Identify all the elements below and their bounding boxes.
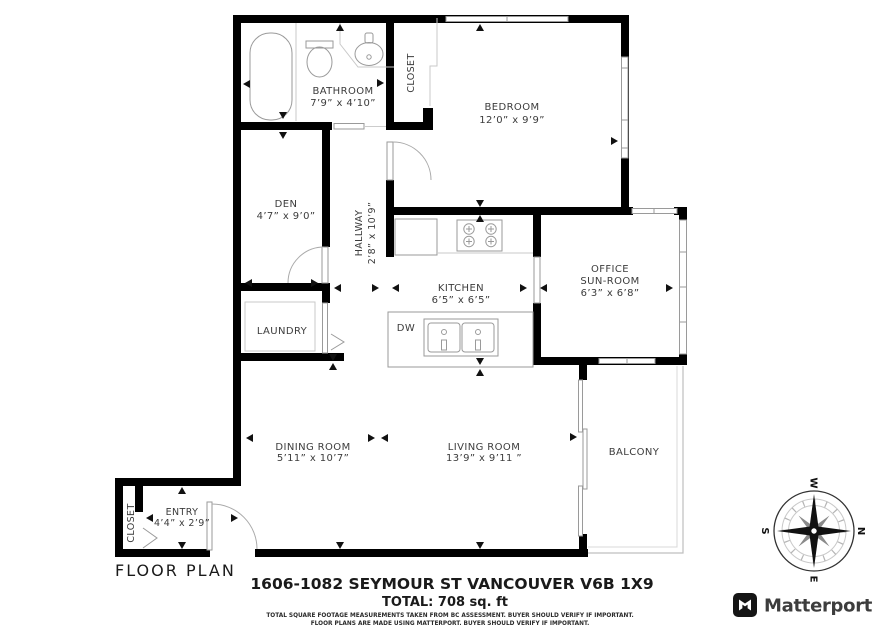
wall-bedroom-bottom [386, 207, 633, 215]
kitchen-sink-unit [424, 319, 498, 356]
arrow-right [231, 514, 238, 522]
hallway-label: HALLWAY [354, 210, 365, 257]
wall-hallway-right [386, 180, 394, 257]
arrow-up [329, 363, 337, 370]
wall-balcony-stub-top [579, 365, 587, 380]
bathroom-label: BATHROOM [312, 86, 373, 97]
den-door-arc [288, 247, 324, 283]
windows [446, 17, 687, 364]
closet-top-label: CLOSET [406, 53, 417, 92]
den-label: DEN [275, 199, 298, 210]
entry-label: ENTRY [166, 507, 199, 518]
matterport-logo: Matterport [733, 593, 873, 617]
wall-entry-left [115, 478, 123, 557]
office-label-line1: OFFICE [591, 264, 629, 275]
fridge-icon [395, 219, 437, 255]
wall-kitchen-right-lower [533, 303, 541, 365]
arrow-down [178, 542, 186, 549]
arrow-left [392, 284, 399, 292]
arrow-left [381, 434, 388, 442]
sink-basin-icon [462, 323, 494, 352]
floor-plan-svg: BATHROOM 7’9” x 4’10” CLOSET BEDROOM 12’… [0, 0, 891, 630]
living-label: LIVING ROOM [448, 442, 520, 453]
arrow-up [336, 24, 344, 31]
arrow-down [476, 358, 484, 365]
burner-cross-marks [466, 226, 494, 245]
entry-closet-label: CLOSET [126, 503, 137, 542]
kitchen-office-door-frame [534, 257, 540, 303]
sink-drain-icon [367, 55, 371, 59]
balcony-label: BALCONY [609, 447, 660, 458]
office-dims: 6’3” x 6’8” [581, 288, 640, 299]
wall-closet-left [386, 15, 394, 130]
wall-top [233, 15, 629, 23]
bedroom-right-window [622, 57, 629, 158]
floor-plan-page: BATHROOM 7’9” x 4’10” CLOSET BEDROOM 12’… [0, 0, 891, 630]
balcony-slider-panel [579, 380, 583, 432]
entry-dims: 4’4” x 2’9” [154, 518, 210, 529]
entry-closet-bifold-chevron [143, 528, 157, 548]
balcony-slider-panel [583, 429, 587, 489]
hallway-dims: 2’8” x 10’9” [367, 202, 378, 265]
arrow-down [476, 200, 484, 207]
arrow-right [377, 79, 384, 87]
bathtub-icon [250, 33, 292, 120]
bedroom-label: BEDROOM [485, 102, 540, 113]
arrow-up [476, 24, 484, 31]
den-dims: 4’7” x 9’0” [257, 211, 316, 222]
bedroom-dims: 12’0” x 9’9” [479, 115, 545, 126]
kitchen-label: KITCHEN [438, 283, 484, 294]
den-door-leaf [322, 247, 328, 283]
disclaimer-line1: TOTAL SQUARE FOOTAGE MEASUREMENTS TAKEN … [266, 613, 633, 619]
toilet-icon [307, 47, 332, 77]
compass-rose: N E S W [759, 477, 866, 582]
wall-living-bottom [255, 549, 588, 557]
sink-basin-icon [428, 323, 460, 352]
bathroom-sink-icon [355, 43, 383, 66]
wall-laundry-right-stub [322, 291, 330, 303]
dining-dims: 5’11” x 10’7” [277, 453, 349, 464]
arrow-left [243, 80, 250, 88]
living-dims: 13’9” x 9’11 ” [446, 453, 522, 464]
office-label-line2: SUN-ROOM [580, 276, 639, 287]
arrow-left [334, 284, 341, 292]
sink-counter-line [340, 23, 394, 67]
laundry-label: LAUNDRY [257, 326, 308, 337]
arrow-right [372, 284, 379, 292]
wall-entry-bottom [115, 549, 210, 557]
footer: FLOOR PLAN 1606-1082 SEYMOUR ST VANCOUVE… [115, 561, 654, 627]
arrow-left [246, 434, 253, 442]
closet-step-line [430, 18, 437, 106]
arrow-left [540, 284, 547, 292]
wall-kitchen-right-upper [533, 207, 541, 257]
stove-icon [457, 220, 502, 251]
sink-stem-icon [442, 340, 447, 350]
arrow-down [476, 542, 484, 549]
arrow-right [570, 433, 577, 441]
laundry-bifold-chevron [331, 334, 344, 350]
arrow-left [146, 514, 153, 522]
wall-entry-top [115, 478, 241, 486]
arrow-right [666, 284, 673, 292]
floor-plan-title: FLOOR PLAN [115, 561, 236, 580]
kitchen-dims: 6’5” x 6’5” [432, 295, 491, 306]
arrow-up [476, 215, 484, 222]
arrow-right [368, 434, 375, 442]
matterport-wordmark: Matterport [764, 596, 873, 617]
wall-closet-corner [423, 108, 433, 130]
total-area-text: TOTAL: 708 sq. ft [382, 595, 508, 610]
dining-label: DINING ROOM [275, 442, 350, 453]
sink-faucet-icon [365, 33, 373, 43]
balcony-railing-outer [588, 366, 683, 553]
wall-bathroom-bottom [233, 122, 332, 130]
dishwasher-label: DW [397, 323, 415, 334]
wall-laundry-bottom [233, 353, 344, 361]
bedroom-door-leaf [387, 142, 393, 180]
doors [143, 124, 587, 551]
sink-drain-icon [442, 330, 447, 335]
compass-w: W [808, 477, 819, 488]
arrow-down [336, 542, 344, 549]
arrow-down [279, 132, 287, 139]
wall-left [233, 15, 241, 486]
address-text: 1606-1082 SEYMOUR ST VANCOUVER V6B 1X9 [250, 575, 653, 593]
bedroom-door-arc [393, 142, 431, 180]
wall-den-right [322, 122, 330, 247]
laundry-door-frame [323, 303, 328, 353]
compass-s: S [759, 527, 770, 534]
arrow-right [611, 137, 618, 145]
compass-n: N [855, 527, 866, 535]
arrow-right [520, 284, 527, 292]
disclaimer-line2: FLOOR PLANS ARE MADE USING MATTERPORT. B… [311, 621, 590, 627]
arrow-up [476, 369, 484, 376]
bathroom-pocket-door [334, 124, 364, 130]
entry-door-arc [212, 504, 257, 549]
compass-hub [811, 528, 817, 534]
balcony-slider-panel [579, 486, 583, 536]
bathroom-dims: 7’9” x 4’10” [310, 98, 376, 109]
compass-e: E [808, 576, 819, 583]
sink-stem-icon [476, 340, 481, 350]
sink-drain-icon [476, 330, 481, 335]
arrow-up [178, 487, 186, 494]
